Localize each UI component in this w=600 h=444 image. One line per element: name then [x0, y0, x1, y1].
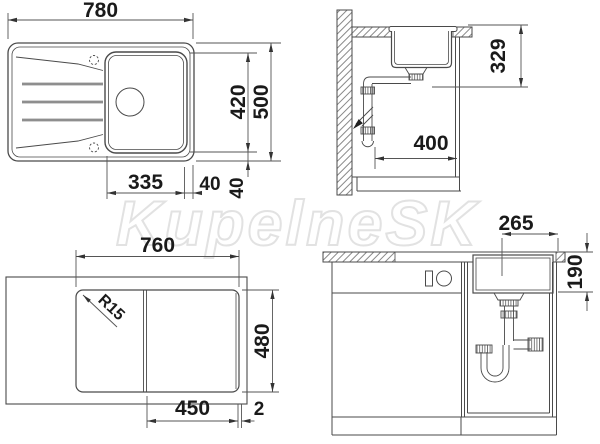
- bowl-outline: [105, 52, 187, 153]
- bowl-inner-line: [109, 56, 184, 150]
- dim-bowl-cutout-offset: 450: [175, 397, 210, 420]
- front-drain-nut: [500, 300, 518, 306]
- sink-dimension-drawing: KupelneSK: [0, 0, 600, 444]
- drainboard-top-edge: [16, 57, 103, 71]
- dim-cutout-depth: 480: [251, 323, 274, 358]
- worktop-outline: [6, 277, 247, 404]
- drainboard-bottom-edge: [16, 135, 103, 149]
- plinth: [332, 417, 557, 435]
- front-pipe-nut: [501, 311, 517, 318]
- drain-hole: [116, 88, 144, 116]
- wall-hatched: [337, 10, 352, 195]
- bowl-section-outer: [392, 31, 452, 68]
- bowl-front-outer: [473, 255, 553, 293]
- handle-slot: [426, 271, 433, 286]
- pipe-nut-lower: [361, 127, 375, 134]
- dim-outlet-offset: 400: [413, 132, 448, 155]
- trap-bottom-cap: [362, 141, 374, 147]
- drain-nut: [409, 74, 423, 80]
- tap-hole-bottom: [90, 143, 99, 152]
- countertop-hatch-left: [352, 27, 393, 37]
- dim-bowl-width: 265: [498, 212, 533, 235]
- dim-right-margin: 40: [199, 174, 220, 195]
- cutout-structure: [6, 277, 247, 404]
- front-trap-nut: [476, 345, 492, 353]
- sink-inner-rim: [12, 47, 190, 157]
- pipe-inner: [372, 84, 411, 142]
- dim-depth-to-outlet: 329: [487, 38, 510, 73]
- front-trap: [476, 293, 543, 382]
- sink-rim-section: [389, 27, 457, 32]
- cabinet-divider: [462, 262, 465, 417]
- dim-bottom-margin: 40: [227, 177, 248, 198]
- section-structure: [337, 10, 472, 195]
- front-drain-flange: [494, 293, 524, 300]
- dim-overall-width: 780: [83, 0, 118, 22]
- drainboard-grooves: [22, 83, 103, 121]
- sink-outer-edge: [8, 43, 194, 161]
- pipe-nut-upper: [361, 87, 375, 94]
- drain-flange: [405, 68, 427, 75]
- plan-sink-body: [8, 43, 194, 161]
- dim-corner-radius: R15: [95, 291, 128, 324]
- dim-edge-gap: 2: [254, 399, 265, 420]
- section-view: 329 400: [337, 10, 528, 195]
- dim-drainer-to-bowl: 335: [128, 171, 163, 194]
- dim-bowl-depth: 190: [564, 254, 587, 289]
- dim-bowl-span: 420: [227, 84, 250, 119]
- cabinet-bottom: [352, 177, 461, 191]
- technical-drawing-svg: 780 420 500 335 40 40: [0, 0, 600, 444]
- front-view: 265 190: [323, 212, 593, 435]
- front-outlet-nut: [528, 338, 543, 351]
- cutout-view: 760 R15 480 450 2: [6, 234, 279, 428]
- knob-circle: [437, 271, 452, 286]
- dim-overall-depth: 500: [250, 84, 273, 119]
- dim-cutout-width: 760: [140, 234, 175, 257]
- plan-view: 780 420 500 335 40 40: [8, 0, 281, 199]
- tap-hole-top: [90, 56, 99, 65]
- countertop-front-hatch-left: [323, 252, 395, 262]
- cutout-divider: [144, 290, 147, 392]
